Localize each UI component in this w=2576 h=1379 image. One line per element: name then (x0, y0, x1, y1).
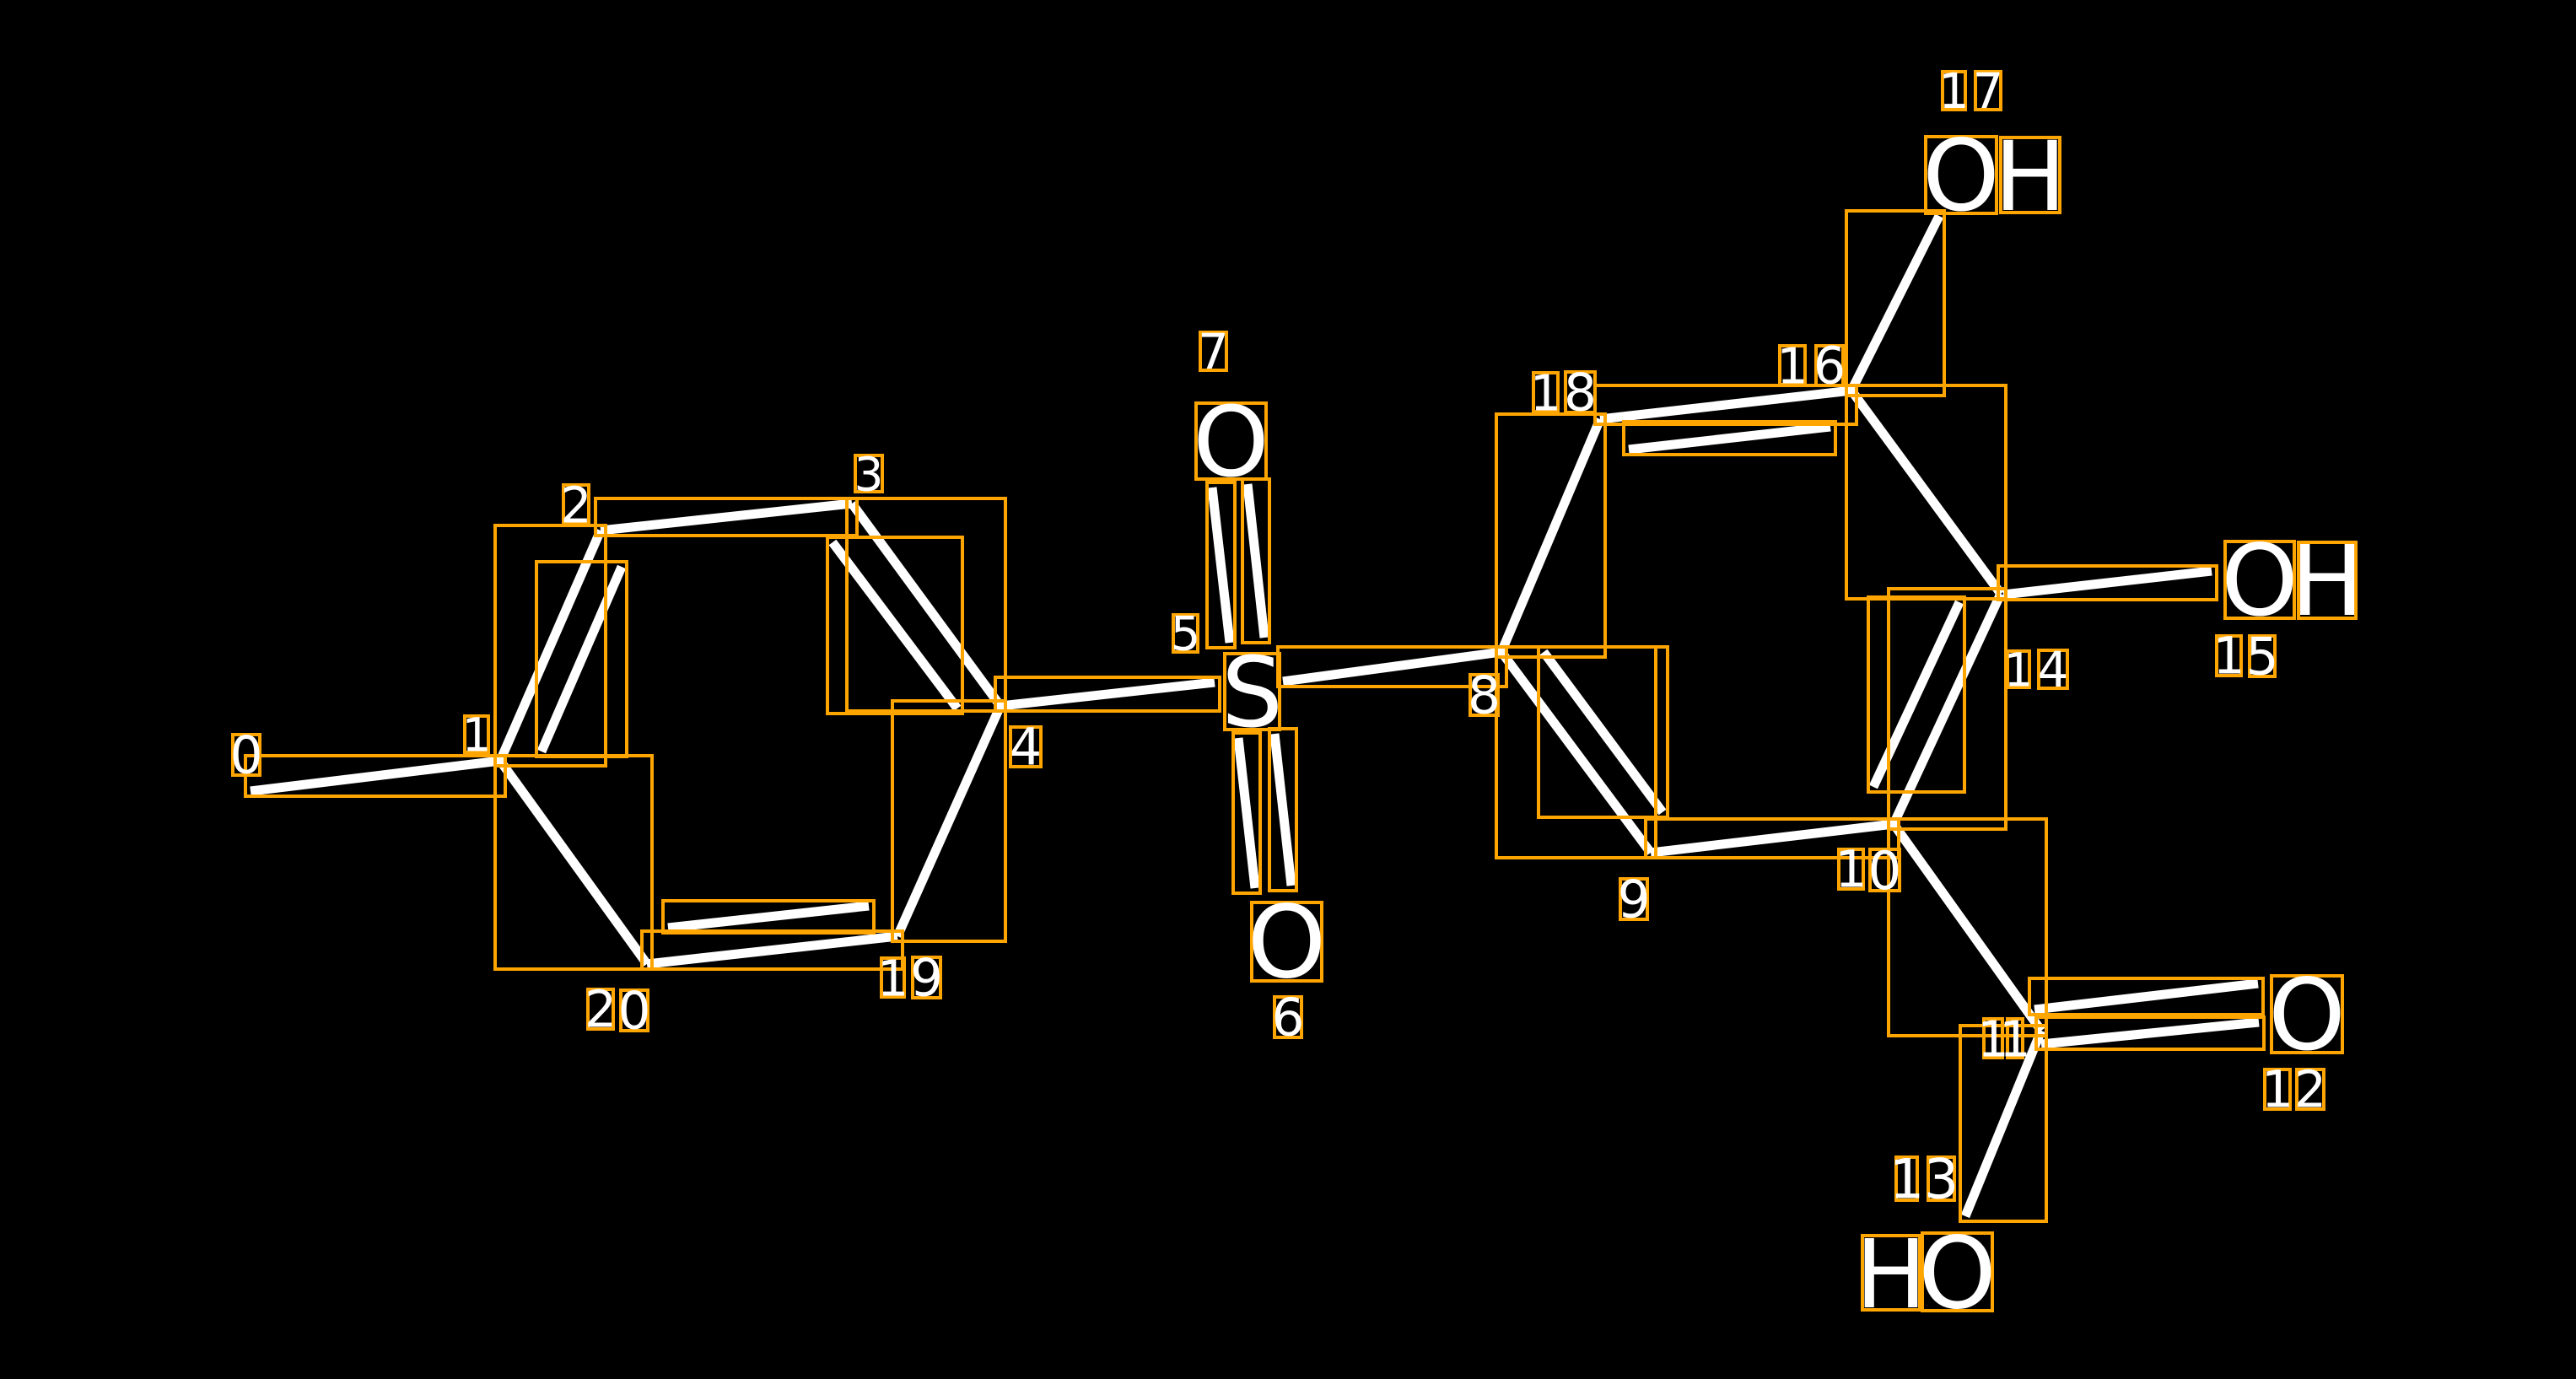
atom-index-20: 0 (617, 981, 650, 1041)
atom-index-0: 0 (229, 725, 262, 785)
atom-index-3: 3 (854, 447, 884, 501)
atom-index-14: 1 (2004, 643, 2034, 697)
atom-index-20: 2 (585, 980, 617, 1039)
atom-index-12: 2 (2294, 1060, 2326, 1119)
atom-index-17: 7 (1973, 63, 2004, 120)
atom-index-8: 8 (1468, 665, 1501, 725)
molecule-annotation-canvas: SOOOHOOHOH012345678910111213141516171819… (0, 0, 2576, 1379)
atom-index-18: 8 (1564, 363, 1597, 423)
atom-label-7: O (1193, 386, 1269, 499)
atom-index-6: 6 (1271, 988, 1304, 1048)
atom-index-11: 1 (1999, 1010, 2030, 1068)
atom-label-15: H (2291, 525, 2364, 638)
atom-index-12: 1 (2261, 1060, 2293, 1119)
atom-label-13: O (1918, 1215, 1997, 1331)
atom-label-15: O (2221, 525, 2298, 638)
atom-index-14: 4 (2038, 642, 2069, 698)
atom-index-4: 4 (1010, 718, 1042, 777)
background (0, 0, 2576, 1379)
atom-index-17: 1 (1938, 63, 1970, 120)
atom-index-7: 7 (1198, 324, 1229, 380)
atom-label-17: H (1994, 121, 2067, 233)
atom-index-9: 9 (1617, 870, 1650, 929)
atom-index-16: 1 (1776, 337, 1808, 395)
atom-index-15: 1 (2212, 627, 2245, 686)
atom-index-19: 9 (910, 948, 943, 1008)
atom-index-15: 5 (2245, 627, 2278, 687)
atom-label-5: S (1221, 637, 1283, 750)
atom-label-17: O (1922, 120, 2000, 234)
atom-index-5: 5 (1171, 606, 1201, 661)
molecule-svg: SOOOHOOHOH012345678910111213141516171819… (0, 0, 2576, 1379)
atom-label-12: O (2268, 959, 2346, 1073)
atom-index-1: 1 (462, 708, 492, 762)
atom-index-2: 2 (560, 476, 591, 534)
atom-label-13: H (1856, 1219, 1927, 1330)
atom-label-6: O (1248, 885, 1327, 1001)
atom-index-13: 3 (1924, 1148, 1959, 1212)
atom-index-18: 1 (1530, 364, 1561, 422)
atom-index-19: 1 (877, 949, 908, 1007)
atom-index-10: 0 (1868, 840, 1902, 902)
atom-index-10: 1 (1835, 840, 1867, 899)
atom-index-16: 6 (1813, 337, 1846, 396)
atom-index-13: 1 (1889, 1148, 1925, 1212)
